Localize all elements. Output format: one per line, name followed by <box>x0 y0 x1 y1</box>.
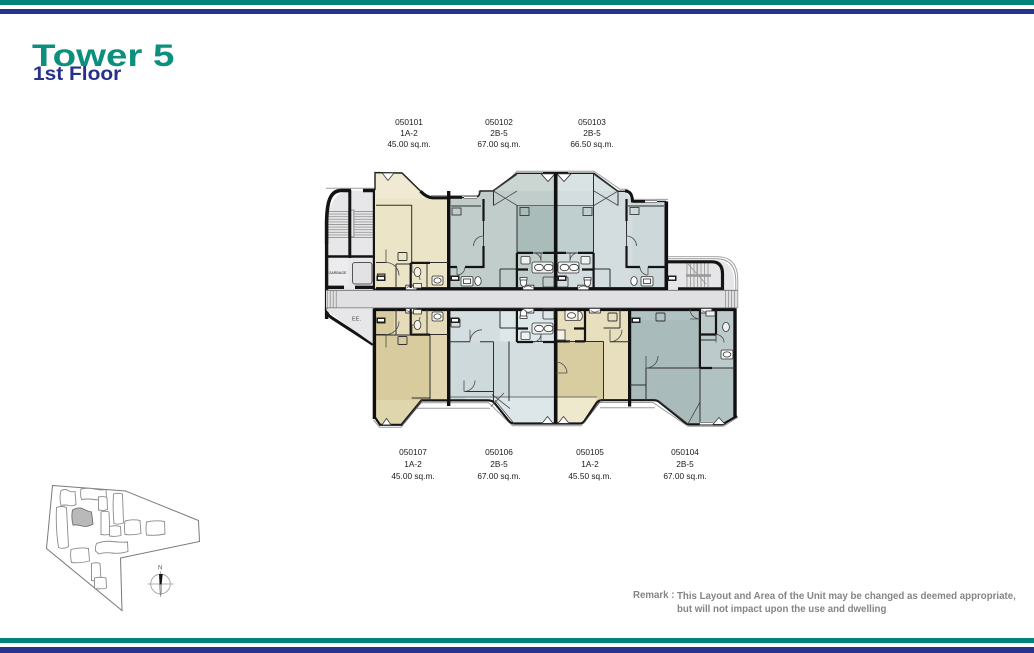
svg-text:EE.: EE. <box>352 317 361 323</box>
svg-text:N: N <box>158 566 162 572</box>
svg-text:GARBAGE: GARBAGE <box>329 271 347 275</box>
